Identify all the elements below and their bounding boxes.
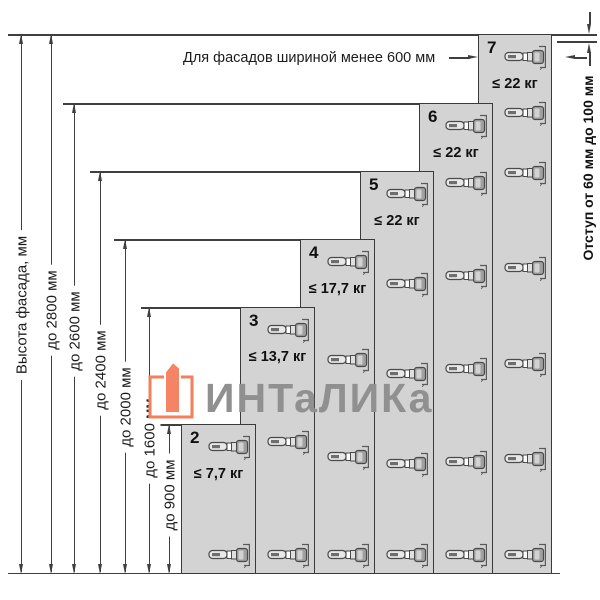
hinge-icon <box>504 100 548 126</box>
hinge-icon <box>445 113 489 139</box>
hinge-placement-diagram: Для фасадов шириной менее 600 мм Отступ … <box>0 0 600 600</box>
narrow-facade-arrowhead <box>468 55 478 59</box>
panel-weight-limit: ≤ 7,7 кг <box>182 466 255 482</box>
hinge-icon <box>445 356 489 382</box>
hinge-icon <box>327 347 371 373</box>
step-line-1600 <box>141 307 242 309</box>
panel-number: 6 <box>428 108 437 125</box>
hinge-icon <box>267 317 311 343</box>
panel-weight-limit: ≤ 22 кг <box>420 145 492 161</box>
step-line-900 <box>160 424 183 426</box>
dim-arrow-top-h1600 <box>147 307 151 317</box>
hinge-icon <box>445 263 489 289</box>
narrow-facade-arrow-line <box>449 57 470 59</box>
hinge-icon <box>504 160 548 186</box>
hinge-icon <box>445 449 489 475</box>
dim-arrow-bottom-facade <box>19 564 23 574</box>
hinge-icon <box>504 351 548 377</box>
panel-number: 5 <box>369 176 378 193</box>
hinge-icon <box>386 181 430 207</box>
panel-number: 3 <box>249 312 258 329</box>
panel-number: 7 <box>487 39 496 56</box>
hinge-icon <box>327 444 371 470</box>
dim-label-h2600: до 2600 мм <box>64 285 85 376</box>
dim-arrow-top-h2400 <box>98 171 102 181</box>
hinge-icon <box>386 451 430 477</box>
dim-arrow-bottom-h2000 <box>123 564 127 574</box>
offset-top-arrowhead <box>587 24 591 34</box>
dim-arrow-top-h2600 <box>72 103 76 113</box>
hinge-icon <box>504 44 548 70</box>
hinge-icon <box>504 542 548 568</box>
hinge-icon <box>386 542 430 568</box>
hinge-icon <box>208 434 252 460</box>
offset-top-arrow-line <box>589 12 590 24</box>
narrow-facade-note: Для фасадов шириной менее 600 мм <box>183 50 435 66</box>
dim-label-h900: до 900 мм <box>159 453 180 536</box>
hinge-icon <box>327 542 371 568</box>
hinge-icon <box>386 271 430 297</box>
offset-hinge-arrow-line <box>574 57 587 59</box>
panel-number: 4 <box>309 244 318 261</box>
step-line-2600 <box>63 103 421 105</box>
dim-arrow-bottom-h2400 <box>98 564 102 574</box>
hinge-icon <box>445 170 489 196</box>
dim-arrow-top-h2800 <box>49 34 53 44</box>
hinge-offset-note: Отступ от 60 мм до 100 мм <box>580 76 596 261</box>
dim-arrow-bottom-h1600 <box>147 564 151 574</box>
offset-bottom-arrow-line <box>589 52 590 66</box>
hinge-icon <box>267 429 311 455</box>
panel-weight-limit: ≤ 22 кг <box>361 213 433 229</box>
hinge-icon <box>386 361 430 387</box>
dim-arrow-top-facade <box>19 34 23 44</box>
dim-label-h1600: до 1600 мм <box>139 392 160 483</box>
dim-label-h2000: до 2000 мм <box>115 361 136 452</box>
hinge-icon <box>208 542 252 568</box>
hinge-icon <box>504 255 548 281</box>
offset-bottom-arrowhead <box>587 43 591 53</box>
panel-weight-limit: ≤ 17,7 кг <box>301 281 374 297</box>
dim-label-h2400: до 2400 мм <box>90 324 111 415</box>
hinge-icon <box>504 446 548 472</box>
hinge-icon <box>267 542 311 568</box>
dim-label-facade: Высота фасада, мм <box>11 230 32 380</box>
dim-label-h2800: до 2800 мм <box>41 264 62 355</box>
panel-number: 2 <box>190 429 199 446</box>
offset-hinge-arrowhead <box>565 55 575 59</box>
step-line-2400 <box>90 171 362 173</box>
hinge-icon <box>327 249 371 275</box>
dim-arrow-bottom-h900 <box>167 564 171 574</box>
dim-arrow-bottom-h2600 <box>72 564 76 574</box>
dim-arrow-top-h900 <box>167 424 171 434</box>
panel-weight-limit: ≤ 13,7 кг <box>241 349 314 365</box>
dim-arrow-top-h2000 <box>123 239 127 249</box>
dim-arrow-bottom-h2800 <box>49 564 53 574</box>
hinge-icon <box>445 542 489 568</box>
step-line-2000 <box>114 239 302 241</box>
panel-weight-limit: ≤ 22 кг <box>479 76 551 92</box>
facade-panel-2: 2≤ 7,7 кг <box>181 424 256 574</box>
